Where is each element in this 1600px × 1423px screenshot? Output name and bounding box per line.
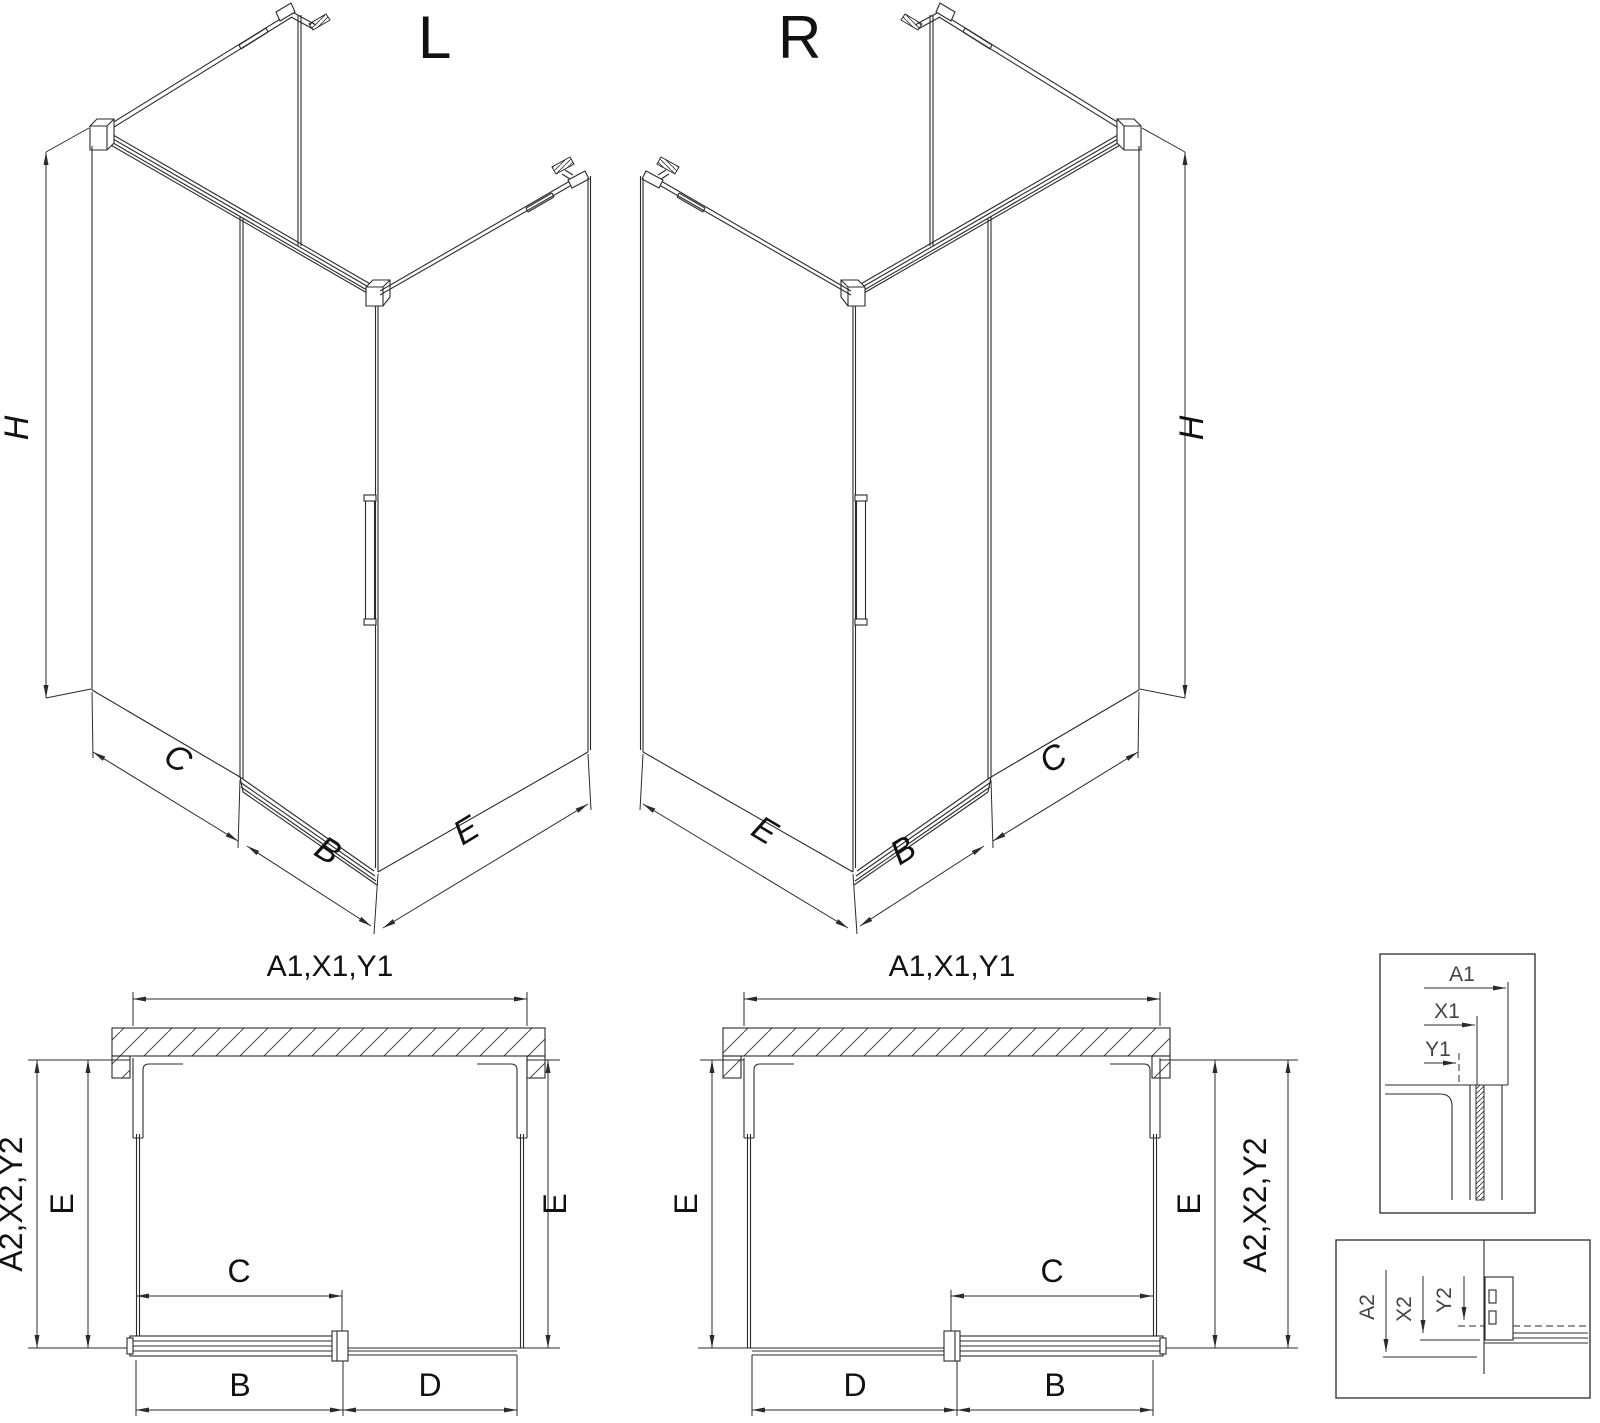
iso-left-door-dim-label: B (308, 828, 347, 872)
plan-right-door-dim-label: B (1044, 1367, 1065, 1403)
iso-right-door-dim-label: B (884, 828, 923, 872)
plan-left-fixed-dim-label: D (418, 1367, 441, 1403)
plan-left-door-dim-label: B (229, 1367, 250, 1403)
iso-left-height-dim-label: H (0, 415, 36, 440)
plan-right-fixed-dim-label: D (843, 1367, 866, 1403)
iso-right-side-dim-label: C (1033, 736, 1074, 781)
plan-left-opening-dim-label: C (227, 1253, 250, 1289)
iso-right-height-dim-label: H (1173, 415, 1211, 440)
iso-right-version-label: R (778, 4, 821, 71)
iso-view-left: L H C B E (0, 3, 591, 934)
plan-right-e-left-dim-label: E (668, 1193, 704, 1214)
detail-bottom-roller-block (1485, 1277, 1513, 1340)
plan-right-outer-dim-label: A2,X2,Y2 (1237, 1137, 1273, 1272)
detail-top-a1-label: A1 (1449, 963, 1475, 986)
plan-left-outer-dim-label: A2,X2,Y2 (0, 1136, 29, 1271)
detail-bottom-y2-label: Y2 (1433, 1287, 1456, 1313)
iso-left-side-dim-label: C (157, 736, 198, 781)
plan-view-left: A1,X1,Y1 A2,X2,Y2 E E C B D (0, 950, 573, 1416)
plan-right-wall-hatch (723, 1028, 1170, 1056)
plan-right-top-dim-label: A1,X1,Y1 (889, 950, 1016, 983)
detail-bottom-a2-label: A2 (1356, 1294, 1379, 1320)
detail-bottom-x2-label: X2 (1393, 1296, 1416, 1322)
iso-left-version-label: L (418, 4, 451, 71)
detail-top-x1-label: X1 (1434, 1000, 1460, 1023)
detail-top-y1-label: Y1 (1425, 1038, 1451, 1061)
plan-left-e-right-dim-label: E (537, 1193, 573, 1214)
technical-drawing-page: L H C B E R H C B E A1,X1,Y1 A2,X2,Y2 E (0, 0, 1600, 1423)
detail-top-glass-section (1476, 1085, 1484, 1200)
iso-view-right: R H C B E (640, 3, 1211, 934)
plan-right-opening-dim-label: C (1040, 1253, 1063, 1289)
plan-left-top-dim-label: A1,X1,Y1 (267, 950, 394, 983)
plan-right-e-right-dim-label: E (1171, 1193, 1207, 1214)
shower-enclosure-drawing: L H C B E R H C B E A1,X1,Y1 A2,X2,Y2 E (0, 0, 1600, 1423)
iso-right-return-dim-label: E (745, 808, 784, 852)
plan-left-wall-hatch (112, 1028, 545, 1056)
plan-view-right: A1,X1,Y1 E E A2,X2,Y2 C B D (668, 950, 1298, 1416)
plan-left-e-left-dim-label: E (44, 1193, 80, 1214)
iso-left-return-dim-label: E (447, 808, 486, 852)
detail-view-top: A1 X1 Y1 (1380, 954, 1535, 1213)
detail-view-bottom: A2 X2 Y2 (1336, 1240, 1590, 1398)
